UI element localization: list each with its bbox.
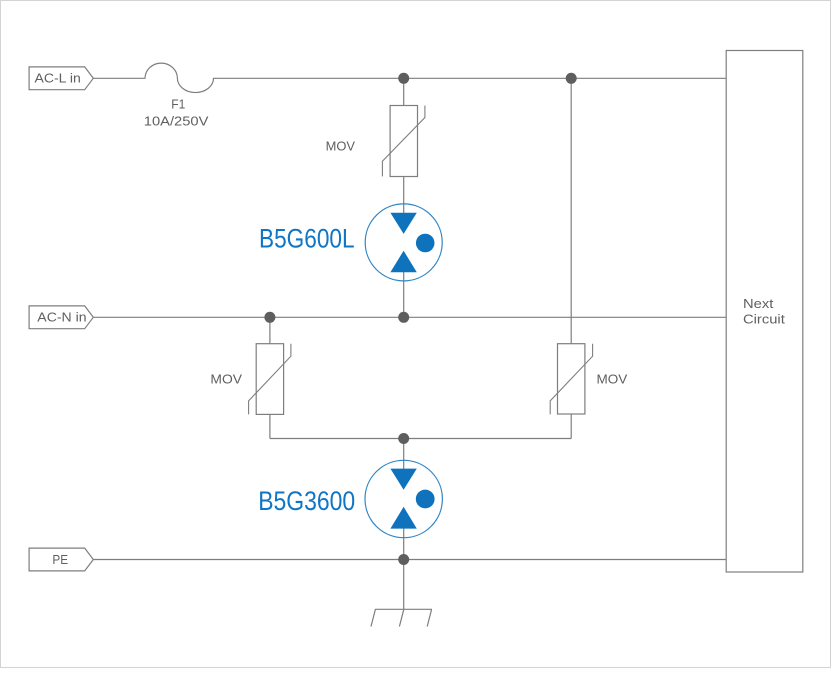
svg-text:PE: PE	[52, 552, 68, 567]
svg-text:Next: Next	[743, 296, 774, 311]
svg-text:MOV: MOV	[597, 372, 628, 387]
svg-text:MOV: MOV	[210, 372, 242, 387]
svg-text:F1: F1	[171, 97, 185, 112]
svg-text:Circuit: Circuit	[743, 312, 785, 327]
svg-text:MOV: MOV	[326, 138, 356, 153]
svg-text:10A/250V: 10A/250V	[144, 113, 209, 128]
svg-text:AC-N in: AC-N in	[37, 310, 86, 325]
svg-text:B5G600L: B5G600L	[259, 223, 355, 253]
svg-text:AC-L in: AC-L in	[35, 71, 81, 86]
svg-text:B5G3600: B5G3600	[258, 486, 355, 516]
